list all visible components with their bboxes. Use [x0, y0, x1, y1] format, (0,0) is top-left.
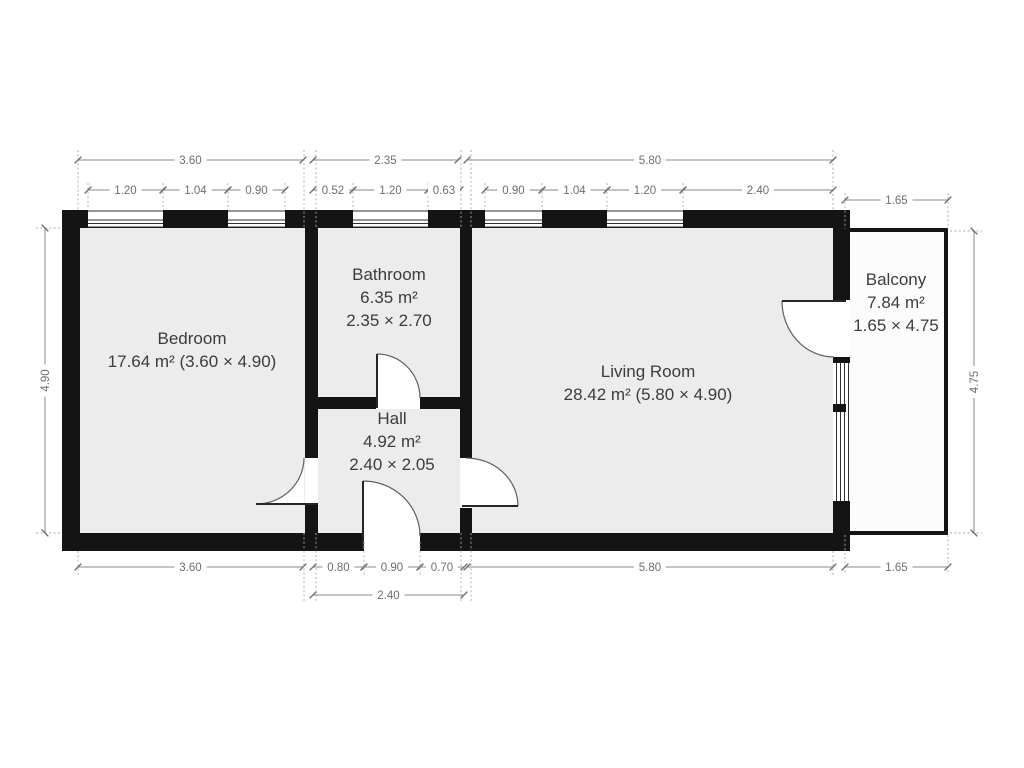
svg-text:3.60: 3.60 — [179, 562, 201, 574]
svg-text:0.63: 0.63 — [433, 185, 455, 197]
wall-top — [62, 210, 850, 228]
svg-text:0.90: 0.90 — [245, 185, 267, 197]
wall-bottom — [62, 533, 850, 551]
svg-text:0.52: 0.52 — [322, 185, 344, 197]
svg-text:2.35: 2.35 — [374, 155, 396, 167]
dimension-seg: 1.04 — [542, 183, 607, 197]
living-window1-opening — [485, 210, 542, 227]
main-floor — [80, 228, 833, 533]
dimension-seg: 1.20 — [353, 183, 428, 197]
svg-text:1.65: 1.65 — [885, 195, 907, 207]
svg-text:1.20: 1.20 — [379, 185, 401, 197]
wall-left — [62, 210, 80, 551]
svg-text:4.90: 4.90 — [40, 369, 52, 391]
bottom-dimensions: 3.60 0.80 0.90 0.70 5.80 1.65 — [78, 560, 948, 602]
hall-dims: 2.40 × 2.05 — [349, 455, 435, 474]
dimension-hall-width: 2.40 — [313, 588, 464, 602]
balcony-label: Balcony — [866, 270, 927, 289]
wall-bedroom-divider-upper — [305, 228, 318, 458]
svg-text:2.40: 2.40 — [747, 185, 769, 197]
svg-text:0.80: 0.80 — [327, 562, 349, 574]
living-room-details: 28.42 m² (5.80 × 4.90) — [564, 385, 733, 404]
bathroom-door-opening — [376, 397, 420, 409]
bedroom-window1-opening — [88, 210, 163, 227]
hall-area: 4.92 m² — [363, 432, 421, 451]
svg-text:1.20: 1.20 — [634, 185, 656, 197]
entrance-door-opening — [364, 533, 420, 551]
svg-text:1.65: 1.65 — [885, 562, 907, 574]
svg-text:0.70: 0.70 — [431, 562, 453, 574]
wall-bathroom-hall-left — [305, 397, 376, 409]
dimension-bathroom-width: 2.35 — [313, 153, 458, 167]
svg-text:4.75: 4.75 — [969, 371, 981, 393]
living-window2-opening — [607, 210, 683, 227]
svg-text:1.04: 1.04 — [184, 185, 207, 197]
svg-text:3.60: 3.60 — [179, 155, 201, 167]
svg-text:5.80: 5.80 — [639, 562, 661, 574]
dimension-seg: 1.20 — [88, 183, 163, 197]
dimension-entrance-width: 0.90 — [364, 560, 420, 574]
bathroom-area: 6.35 m² — [360, 288, 418, 307]
bedroom-details: 17.64 m² (3.60 × 4.90) — [108, 352, 277, 371]
dimension-seg: 0.52 — [313, 183, 353, 197]
balcony-dims: 1.65 × 4.75 — [853, 316, 939, 335]
dimension-seg: 0.90 — [485, 183, 542, 197]
dimension-seg: 0.80 — [313, 560, 364, 574]
dimension-bedroom-width: 3.60 — [78, 153, 303, 167]
top-dimensions-sub: 1.20 1.04 0.90 0.52 1.20 0.63 — [88, 183, 948, 207]
dimension-balcony-width-top: 1.65 — [845, 193, 948, 207]
wall-hall-living-upper — [460, 228, 472, 458]
dimension-right-height: 4.75 — [967, 231, 981, 533]
bedroom-label: Bedroom — [158, 329, 227, 348]
living-door-opening — [460, 458, 472, 508]
wall-hall-living-lower — [460, 508, 472, 533]
svg-text:5.80: 5.80 — [639, 155, 661, 167]
dimension-seg: 1.04 — [163, 183, 228, 197]
svg-text:0.90: 0.90 — [381, 562, 403, 574]
dimension-living-width: 5.80 — [467, 153, 833, 167]
svg-text:2.40: 2.40 — [377, 590, 399, 602]
wall-bedroom-divider-lower — [305, 505, 318, 533]
balcony-window-opening — [833, 357, 850, 507]
bedroom-door-opening — [305, 458, 318, 505]
balcony-door-opening — [833, 300, 850, 357]
balcony-window-cap-bottom — [833, 501, 850, 507]
svg-text:1.04: 1.04 — [563, 185, 586, 197]
dimension-seg: 1.20 — [607, 183, 683, 197]
dimension-seg: 0.70 — [420, 560, 464, 574]
dimension-seg: 0.90 — [228, 183, 285, 197]
bathroom-window-opening — [353, 210, 428, 227]
living-room-label: Living Room — [601, 362, 696, 381]
bathroom-label: Bathroom — [352, 265, 426, 284]
dimension-living-width-bottom: 5.80 — [467, 560, 833, 574]
bathroom-dims: 2.35 × 2.70 — [346, 311, 432, 330]
balcony-area: 7.84 m² — [867, 293, 925, 312]
floor-plan: Bedroom 17.64 m² (3.60 × 4.90) Bathroom … — [0, 0, 1024, 768]
dimension-left-height: 4.90 — [38, 228, 52, 533]
top-dimensions-main: 3.60 2.35 5.80 — [78, 153, 833, 167]
dimension-bedroom-width-bottom: 3.60 — [78, 560, 303, 574]
hall-label: Hall — [377, 409, 406, 428]
balcony-window-mullion — [833, 404, 846, 412]
dimension-seg: 2.40 — [683, 183, 833, 197]
svg-text:0.90: 0.90 — [502, 185, 524, 197]
dimension-seg: 0.63 — [428, 183, 460, 197]
svg-text:1.20: 1.20 — [114, 185, 136, 197]
dimension-balcony-width-bottom: 1.65 — [845, 560, 948, 574]
wall-bathroom-hall-right — [420, 397, 460, 409]
bedroom-window2-opening — [228, 210, 285, 227]
balcony-window-cap-top — [833, 357, 850, 363]
